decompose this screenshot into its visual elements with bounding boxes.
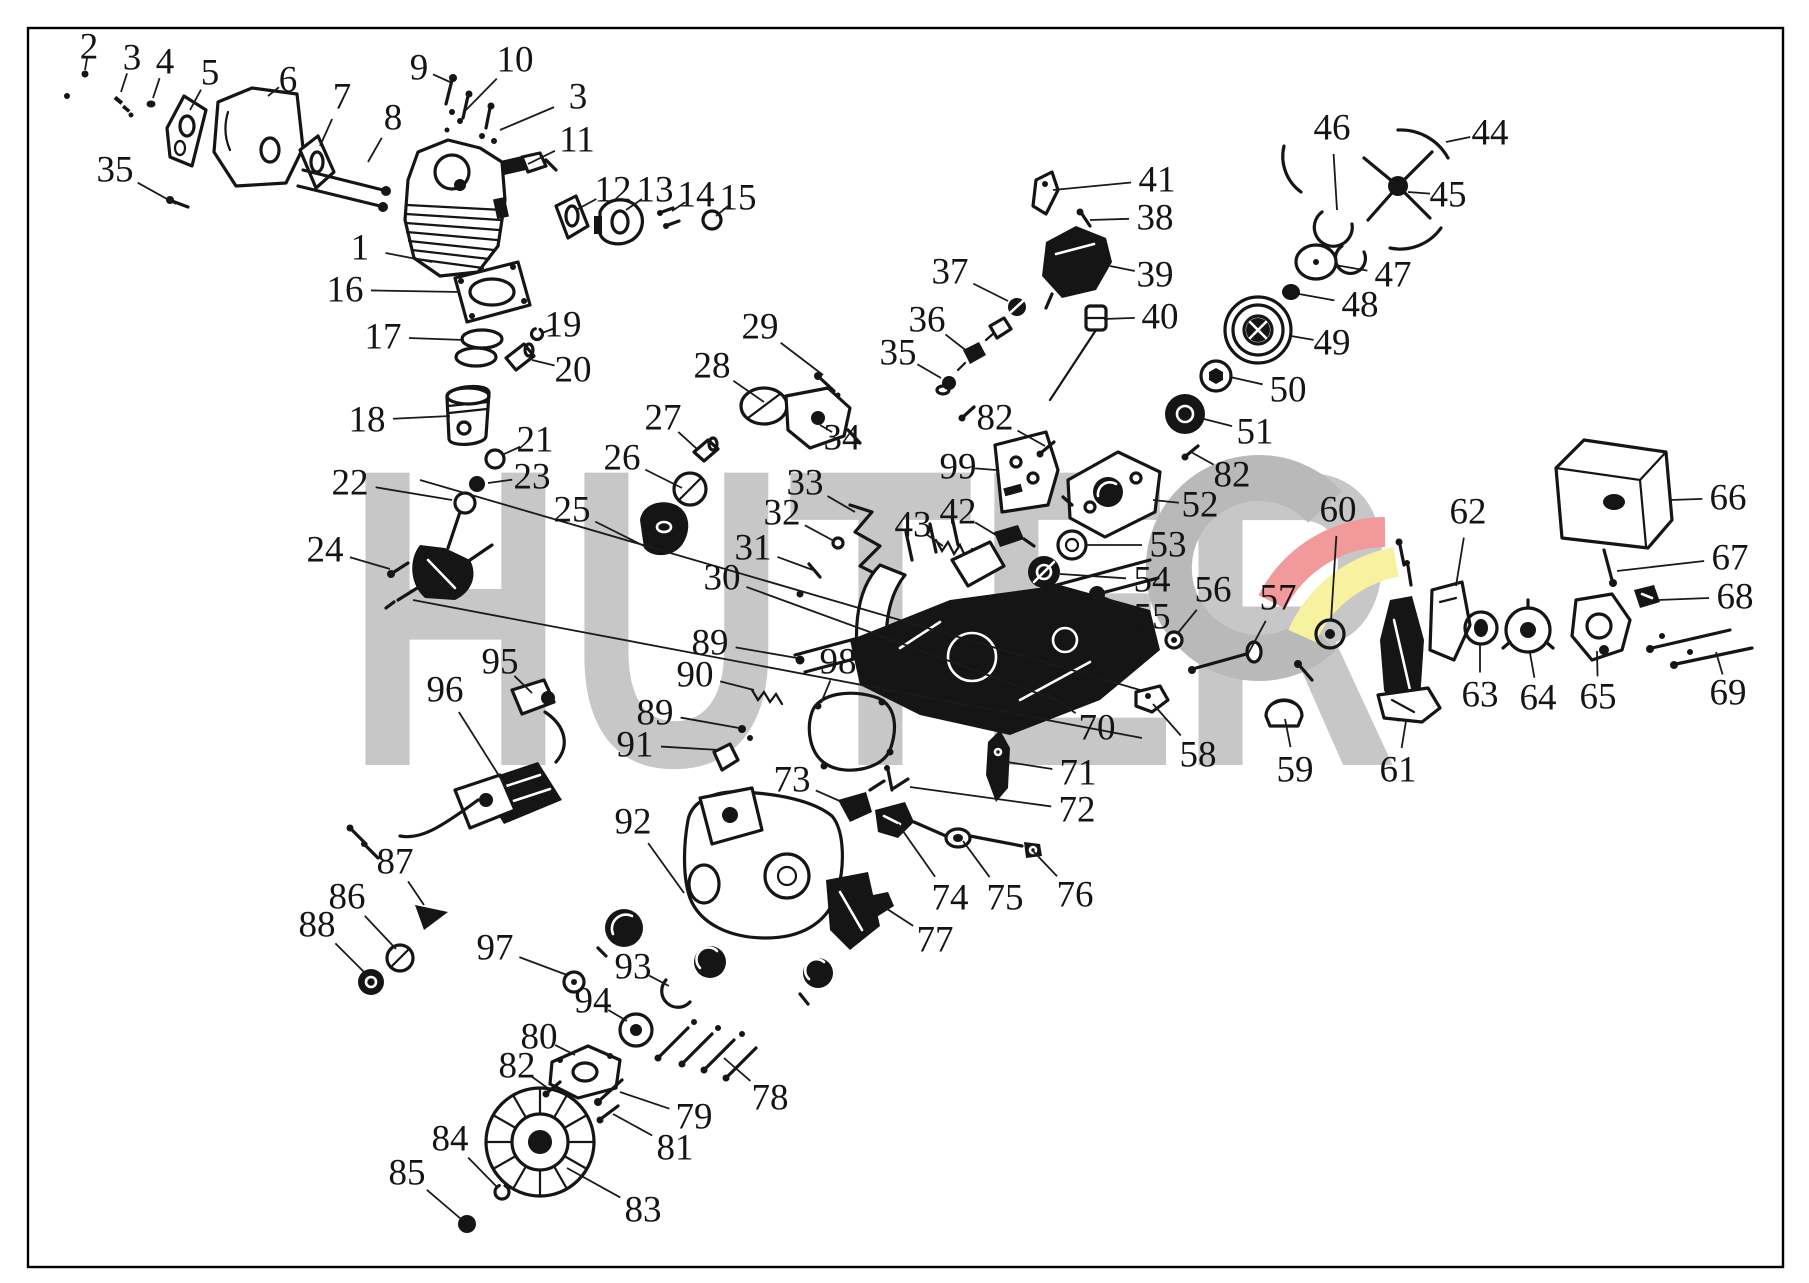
screw-part-35 bbox=[166, 196, 188, 207]
fastener-parts-2-3-4 bbox=[64, 71, 156, 118]
part-number-35: 35 bbox=[97, 150, 134, 191]
part-number-41: 41 bbox=[1139, 160, 1176, 201]
part-number-17: 17 bbox=[365, 317, 402, 358]
part-number-46: 46 bbox=[1314, 108, 1351, 149]
part-number-92: 92 bbox=[615, 802, 652, 843]
part-number-33: 33 bbox=[787, 463, 824, 504]
part-number-29: 29 bbox=[742, 307, 779, 348]
part-number-95: 95 bbox=[482, 642, 519, 683]
part-number-3: 3 bbox=[123, 38, 142, 79]
part-number-61: 61 bbox=[1380, 750, 1417, 791]
part-number-75: 75 bbox=[987, 878, 1024, 919]
leader-line-77 bbox=[884, 907, 913, 926]
screw-parts-14 bbox=[657, 208, 679, 229]
part-number-36: 36 bbox=[909, 300, 946, 341]
leader-line-3 bbox=[500, 107, 554, 130]
mount-part-61 bbox=[1378, 688, 1440, 722]
leader-line-49 bbox=[1291, 336, 1314, 340]
part-number-37: 37 bbox=[932, 252, 969, 293]
leader-line-88 bbox=[335, 943, 365, 973]
part-number-82: 82 bbox=[1214, 455, 1251, 496]
leader-line-40 bbox=[1104, 318, 1135, 319]
part-number-43: 43 bbox=[895, 505, 932, 546]
part-number-38: 38 bbox=[1137, 198, 1174, 239]
part-number-81: 81 bbox=[657, 1128, 694, 1169]
part-number-58: 58 bbox=[1180, 735, 1217, 776]
part-number-71: 71 bbox=[1060, 753, 1097, 794]
part-number-69: 69 bbox=[1710, 673, 1747, 714]
leader-line-35 bbox=[138, 183, 176, 204]
part-number-54: 54 bbox=[1134, 560, 1171, 601]
part-number-73: 73 bbox=[774, 760, 811, 801]
gasket-part-7 bbox=[300, 136, 334, 188]
part-number-62: 62 bbox=[1450, 492, 1487, 533]
kill-switch-parts-35-37 bbox=[937, 298, 1026, 394]
part-number-91: 91 bbox=[617, 725, 654, 766]
leader-line-86 bbox=[365, 916, 396, 949]
piston-ring-parts-17 bbox=[456, 330, 502, 366]
plate-part-62 bbox=[1430, 582, 1470, 660]
part-number-19: 19 bbox=[545, 305, 582, 346]
wrist-pin-parts-19-20 bbox=[506, 329, 543, 371]
part-number-93: 93 bbox=[615, 947, 652, 988]
part-number-14: 14 bbox=[678, 175, 715, 216]
part-number-84: 84 bbox=[432, 1119, 469, 1160]
part-number-72: 72 bbox=[1059, 790, 1096, 831]
leader-line-64 bbox=[1530, 653, 1534, 678]
part-number-4: 4 bbox=[156, 42, 175, 83]
cylinder-part-1 bbox=[405, 140, 509, 276]
starter-pawl-parts-86-88 bbox=[358, 905, 448, 995]
part-number-15: 15 bbox=[720, 178, 757, 219]
part-number-40: 40 bbox=[1142, 297, 1179, 338]
plate-part-5 bbox=[167, 96, 206, 166]
leader-line-66 bbox=[1671, 499, 1702, 500]
part-number-94: 94 bbox=[575, 981, 612, 1022]
leader-line-67 bbox=[1617, 561, 1704, 571]
leader-line-79 bbox=[620, 1092, 669, 1109]
exploded-parts-diagram: HUTER bbox=[0, 0, 1809, 1283]
part-number-12: 12 bbox=[595, 170, 632, 211]
leader-line-80 bbox=[555, 1045, 575, 1055]
part-number-11: 11 bbox=[559, 120, 595, 161]
part-number-96: 96 bbox=[427, 670, 464, 711]
part-number-50: 50 bbox=[1270, 370, 1307, 411]
part-number-24: 24 bbox=[307, 530, 344, 571]
part-number-48: 48 bbox=[1342, 285, 1379, 326]
leader-line-87 bbox=[408, 881, 424, 905]
part-number-1: 1 bbox=[351, 228, 370, 269]
part-number-2: 2 bbox=[80, 27, 99, 68]
part-number-63: 63 bbox=[1462, 675, 1499, 716]
leader-line-68 bbox=[1658, 598, 1709, 600]
leader-line-85 bbox=[427, 1190, 461, 1219]
leader-line-44 bbox=[1446, 137, 1470, 142]
part-number-74: 74 bbox=[932, 878, 969, 919]
part-number-85: 85 bbox=[389, 1153, 426, 1194]
leader-line-20 bbox=[532, 360, 555, 366]
part-number-87: 87 bbox=[377, 842, 414, 883]
leader-line-46 bbox=[1334, 154, 1337, 210]
leader-line-7 bbox=[320, 119, 332, 146]
part-number-65: 65 bbox=[1580, 677, 1617, 718]
starter-parts-63-64-65 bbox=[1465, 594, 1630, 660]
part-number-99: 99 bbox=[940, 447, 977, 488]
leader-line-97 bbox=[519, 957, 567, 975]
leader-line-41 bbox=[1053, 182, 1131, 190]
part-number-78: 78 bbox=[752, 1078, 789, 1119]
part-number-5: 5 bbox=[201, 53, 220, 94]
part-number-66: 66 bbox=[1710, 478, 1747, 519]
part-number-77: 77 bbox=[917, 920, 954, 961]
part-number-23: 23 bbox=[514, 457, 551, 498]
part-number-83: 83 bbox=[625, 1190, 662, 1231]
screw-parts-9-10-3 bbox=[445, 74, 498, 144]
part-number-70: 70 bbox=[1079, 708, 1116, 749]
leader-line-8 bbox=[368, 138, 382, 162]
leader-line-61 bbox=[1402, 721, 1406, 748]
part-number-25: 25 bbox=[554, 490, 591, 531]
leader-line-45 bbox=[1408, 192, 1430, 194]
part-number-97: 97 bbox=[477, 928, 514, 969]
ignition-parts-38-41 bbox=[1033, 172, 1112, 400]
leader-line-65 bbox=[1597, 651, 1598, 676]
part-number-13: 13 bbox=[637, 170, 674, 211]
cover-part-6 bbox=[214, 88, 303, 186]
part-number-64: 64 bbox=[1520, 678, 1557, 719]
leader-line-35 bbox=[917, 364, 941, 378]
part-number-31: 31 bbox=[735, 528, 772, 569]
leader-line-17 bbox=[409, 338, 464, 340]
piston-part-18 bbox=[447, 386, 489, 444]
part-number-22: 22 bbox=[332, 463, 369, 504]
part-number-88: 88 bbox=[299, 905, 336, 946]
part-number-76: 76 bbox=[1057, 875, 1094, 916]
part-number-10: 10 bbox=[497, 40, 534, 81]
part-number-42: 42 bbox=[940, 492, 977, 533]
parts-artwork bbox=[64, 71, 1752, 1234]
leader-line-81 bbox=[613, 1114, 652, 1135]
leader-line-16 bbox=[371, 290, 460, 292]
part-number-90: 90 bbox=[677, 655, 714, 696]
leader-line-29 bbox=[781, 343, 823, 375]
part-number-51: 51 bbox=[1237, 412, 1274, 453]
part-number-20: 20 bbox=[555, 350, 592, 391]
leader-line-39 bbox=[1110, 266, 1135, 271]
part-number-55: 55 bbox=[1134, 597, 1171, 638]
part-number-26: 26 bbox=[604, 438, 641, 479]
leader-line-37 bbox=[973, 284, 1008, 301]
part-number-3: 3 bbox=[569, 77, 588, 118]
part-number-82: 82 bbox=[499, 1046, 536, 1087]
leader-line-36 bbox=[945, 334, 968, 352]
part-number-8: 8 bbox=[384, 98, 403, 139]
part-number-82: 82 bbox=[977, 398, 1014, 439]
gasket-part-12 bbox=[556, 196, 588, 238]
part-number-49: 49 bbox=[1314, 323, 1351, 364]
part-number-28: 28 bbox=[694, 346, 731, 387]
leader-line-9 bbox=[433, 74, 450, 82]
part-number-7: 7 bbox=[333, 77, 352, 118]
part-number-18: 18 bbox=[349, 400, 386, 441]
part-number-56: 56 bbox=[1195, 570, 1232, 611]
part-number-16: 16 bbox=[327, 270, 364, 311]
part-number-67: 67 bbox=[1712, 538, 1749, 579]
part-number-21: 21 bbox=[517, 420, 554, 461]
leader-line-48 bbox=[1299, 294, 1334, 300]
part-number-68: 68 bbox=[1717, 577, 1754, 618]
part-number-98: 98 bbox=[820, 642, 857, 683]
part-number-47: 47 bbox=[1375, 255, 1412, 296]
leader-line-38 bbox=[1090, 219, 1129, 220]
part-number-59: 59 bbox=[1277, 750, 1314, 791]
part-number-9: 9 bbox=[410, 48, 429, 89]
part-number-60: 60 bbox=[1320, 490, 1357, 531]
part-number-44: 44 bbox=[1472, 113, 1509, 154]
part-number-34: 34 bbox=[824, 418, 861, 459]
part-number-39: 39 bbox=[1137, 255, 1174, 296]
leader-line-62 bbox=[1456, 538, 1464, 586]
part-number-45: 45 bbox=[1430, 175, 1467, 216]
part-number-27: 27 bbox=[645, 398, 682, 439]
part-number-6: 6 bbox=[279, 60, 298, 101]
part-number-57: 57 bbox=[1260, 578, 1297, 619]
washer-part-23 bbox=[469, 476, 485, 492]
